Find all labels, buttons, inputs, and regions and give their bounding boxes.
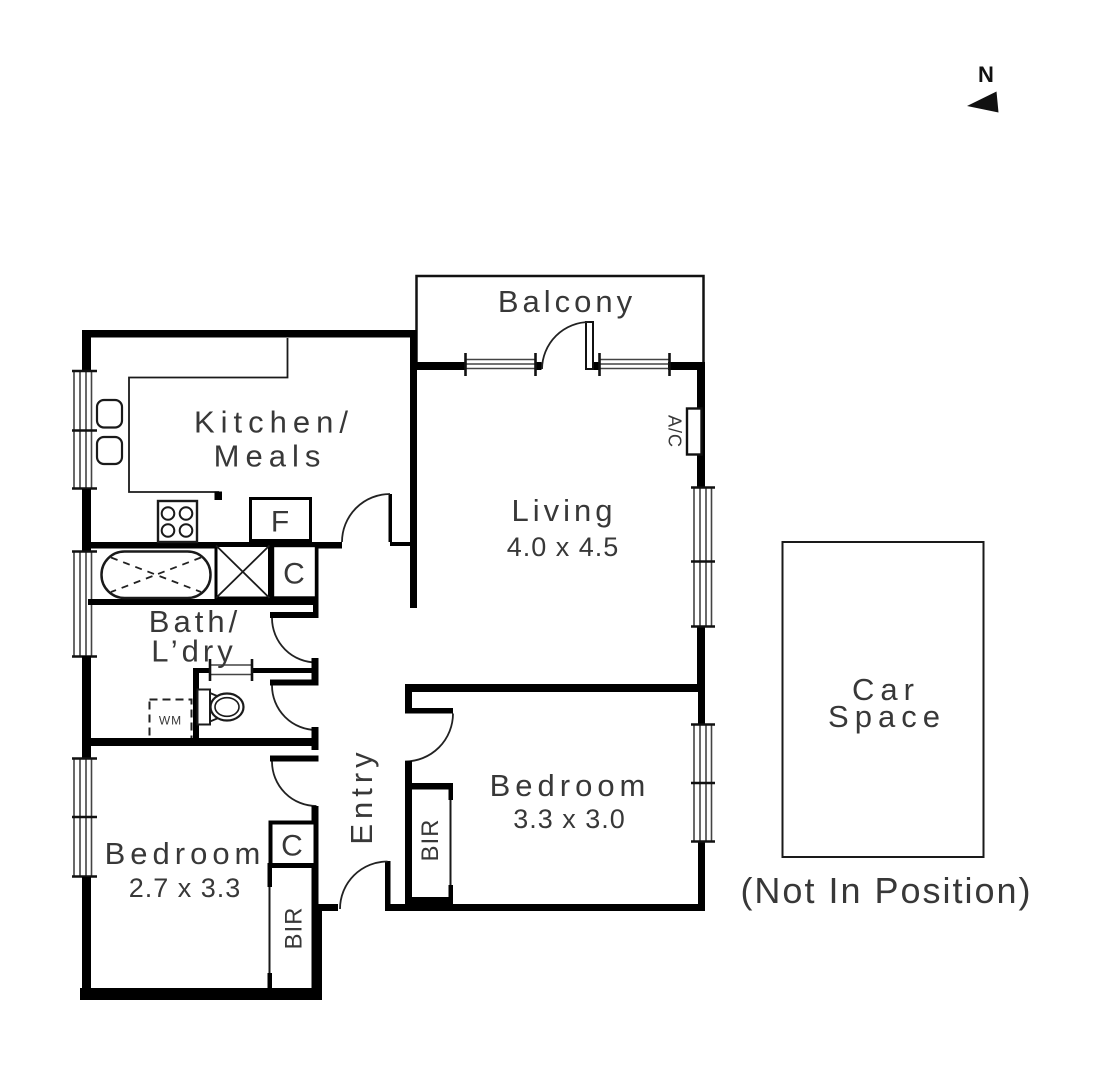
svg-text:Kitchen/: Kitchen/	[194, 405, 354, 440]
svg-text:3.3 x 3.0: 3.3 x 3.0	[513, 804, 626, 834]
svg-text:L’dry: L’dry	[151, 634, 236, 669]
svg-text:C: C	[281, 830, 304, 863]
svg-text:F: F	[271, 506, 290, 539]
svg-text:C: C	[283, 558, 306, 591]
svg-text:N: N	[978, 62, 994, 87]
svg-text:BIR: BIR	[281, 906, 308, 949]
svg-text:BIR: BIR	[417, 818, 444, 861]
svg-text:WM: WM	[159, 714, 182, 728]
svg-text:Bedroom: Bedroom	[105, 836, 266, 871]
svg-text:Space: Space	[828, 699, 946, 734]
svg-text:2.7 x 3.3: 2.7 x 3.3	[129, 873, 242, 903]
svg-text:Meals: Meals	[214, 439, 327, 474]
svg-text:(Not In Position): (Not In Position)	[740, 870, 1032, 911]
svg-text:Bedroom: Bedroom	[490, 768, 651, 803]
svg-text:4.0 x 4.5: 4.0 x 4.5	[507, 532, 620, 562]
svg-text:Entry: Entry	[344, 747, 379, 844]
svg-text:A/C: A/C	[665, 415, 685, 448]
svg-text:Balcony: Balcony	[498, 284, 636, 319]
svg-text:Living: Living	[512, 493, 617, 528]
